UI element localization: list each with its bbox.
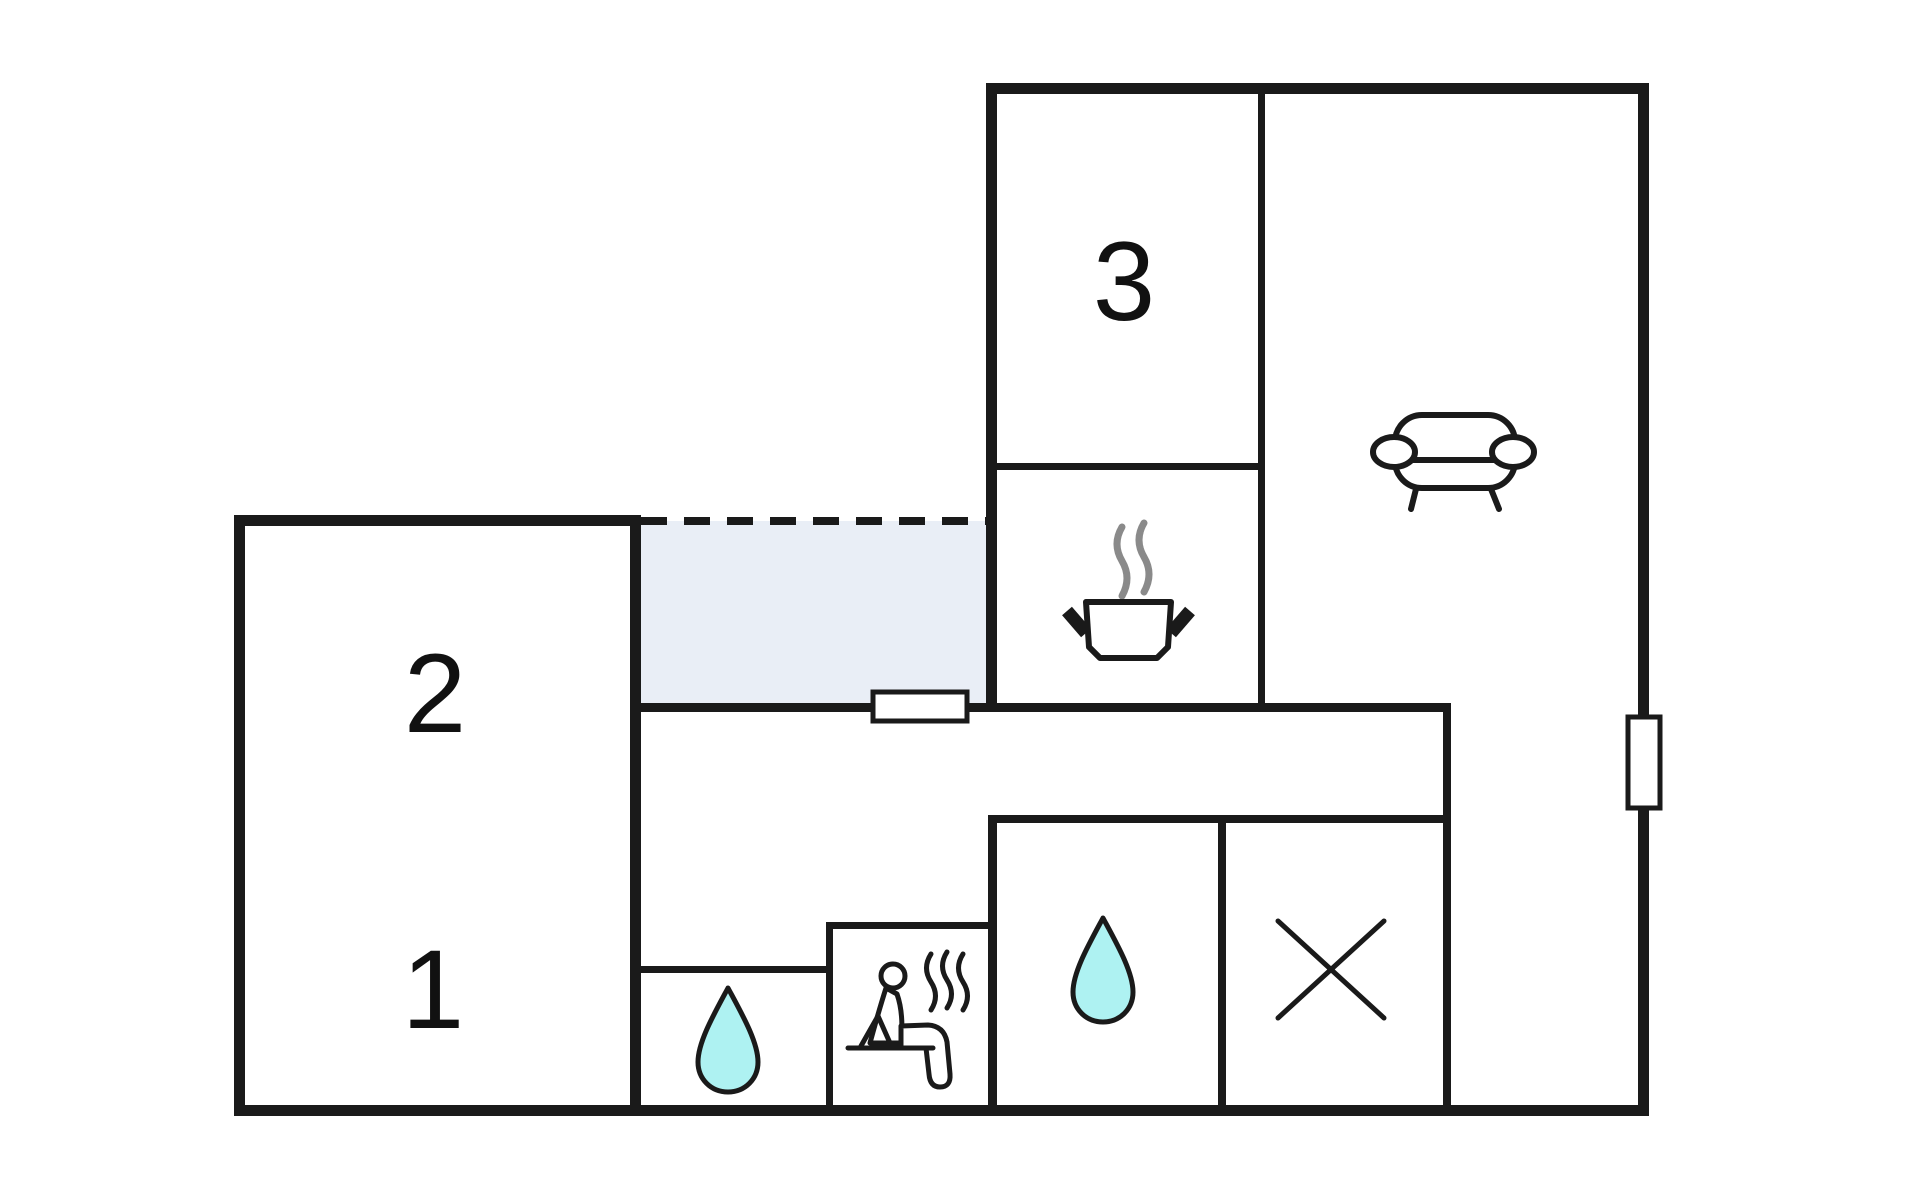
x-mark-icon (1278, 921, 1384, 1018)
room-2-label: 2 (404, 631, 466, 756)
wall-bathroom-utility-divider (1218, 815, 1226, 1105)
water-drop-icon (698, 988, 758, 1092)
water-drop-icon (1073, 918, 1133, 1022)
sauna-heat-wave (959, 954, 968, 1010)
cooking-pot-icon (1067, 523, 1190, 658)
wall-top-upper-block (986, 83, 1649, 94)
steam-curl (1117, 527, 1127, 596)
wall-room3-kitchen (997, 463, 1258, 470)
sofa-leg-right (1491, 489, 1499, 509)
wall-hall-top (630, 703, 1448, 712)
sofa-leg-left (1411, 489, 1416, 509)
wall-kitchen-living (1258, 94, 1265, 712)
wall-bottom-outer (234, 1105, 1649, 1116)
wall-bathroom-large-left (988, 815, 997, 1105)
wall-left-outer (234, 515, 245, 1116)
wall-utility-right (1443, 703, 1451, 1105)
sauna-heat-wave (927, 954, 936, 1010)
hall-terrace-door (873, 692, 967, 721)
sauna-person-head (881, 964, 905, 988)
wall-left-block-right (630, 515, 641, 1105)
sauna-heat-wave (943, 952, 952, 1008)
floor-plan-canvas: 3 2 1 (0, 0, 1920, 1200)
wall-sauna-top (826, 922, 997, 929)
floor-plan: 3 2 1 (0, 0, 1920, 1200)
sauna-person-leg (901, 1025, 950, 1087)
terrace-fill (641, 521, 986, 705)
wall-bathroom-small-top (641, 966, 831, 973)
wall-top-left-block (234, 515, 641, 526)
wall-right-outer (1638, 83, 1649, 1116)
room-3-label: 3 (1093, 219, 1155, 344)
right-wall-door (1628, 717, 1660, 808)
steam-curl (1139, 523, 1149, 592)
wall-upper-block-left (986, 83, 997, 712)
sauna-person-icon (848, 952, 968, 1087)
sofa-armrest-left (1373, 437, 1415, 467)
terrace-area (641, 521, 986, 705)
pot-body (1086, 602, 1171, 658)
room-1-label: 1 (402, 927, 464, 1052)
sofa-icon (1373, 415, 1534, 509)
sofa-armrest-right (1492, 437, 1534, 467)
pot-handle-right (1171, 611, 1190, 633)
pot-handle-left (1067, 611, 1086, 633)
wall-bathroom-sauna-divider (826, 922, 833, 1105)
